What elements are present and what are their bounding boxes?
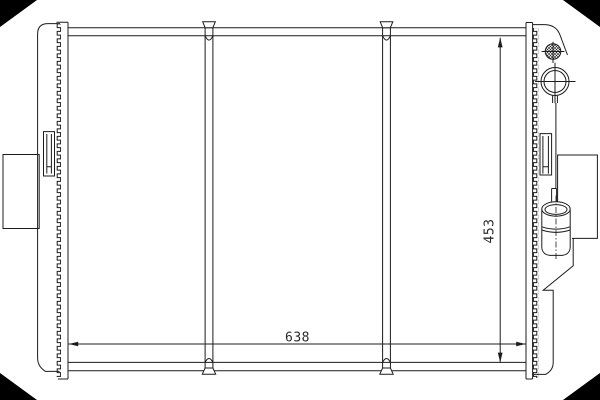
dimension-width: 638: [69, 330, 526, 346]
corner-mark-top-left: [0, 0, 37, 27]
core: [68, 28, 526, 371]
core-top-header: [68, 28, 526, 36]
partition-bar-1: [202, 22, 215, 374]
left-header-plate: [56, 22, 68, 379]
technical-drawing-page: 638 453: [0, 0, 600, 400]
partition-bar-2: [380, 22, 393, 374]
dimension-height: 453: [483, 38, 503, 362]
dimension-height-label: 453: [483, 219, 498, 244]
outlet-pipe: [542, 189, 570, 260]
right-mounting-bracket: [558, 155, 598, 238]
right-tank: [533, 25, 598, 375]
left-tank: [3, 22, 68, 379]
dimension-width-arrow-right: [516, 342, 526, 347]
left-mounting-bracket: [3, 155, 39, 229]
right-clip: [540, 134, 552, 175]
corner-mark-bottom-right: [563, 373, 600, 400]
vent-plug-icon: [542, 42, 565, 63]
radiator-technical-drawing: 638 453: [0, 0, 600, 400]
lower-gusset-outline: [533, 238, 574, 374]
dimension-height-arrow-bottom: [498, 353, 503, 363]
left-crimp-edge: [56, 24, 61, 377]
dimension-width-arrow-left: [69, 342, 79, 347]
right-tank-edge: [553, 96, 558, 189]
core-bottom-header: [68, 362, 526, 370]
dimension-width-label: 638: [285, 330, 310, 345]
corner-mark-top-right: [563, 0, 600, 27]
right-header-plate: [526, 23, 538, 380]
right-crimp-edge: [533, 28, 538, 378]
filler-neck-icon: [535, 63, 576, 104]
corner-mark-bottom-left: [0, 373, 37, 400]
dimension-height-arrow-top: [498, 38, 503, 48]
left-clip: [44, 132, 55, 176]
